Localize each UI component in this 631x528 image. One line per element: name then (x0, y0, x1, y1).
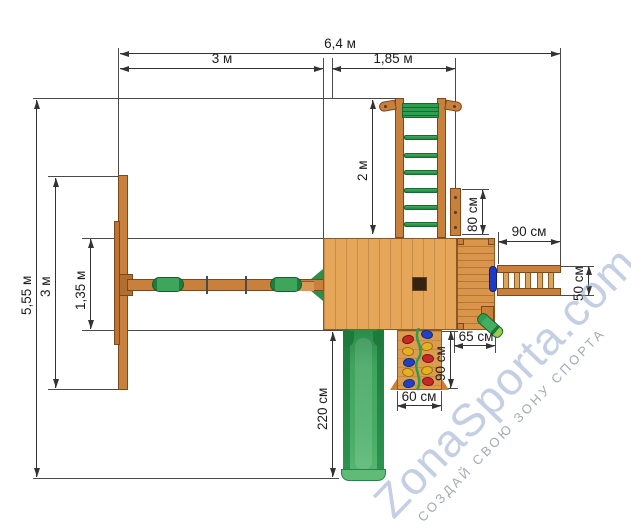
swing-seat-2 (270, 277, 302, 292)
dim-slide-length (332, 332, 333, 477)
dim-deck-depth-label: 1,35 м (73, 271, 88, 310)
monkey-bar-rung (404, 170, 438, 175)
beam-brace-lower (311, 291, 323, 301)
extension-line-right-end (560, 48, 561, 265)
dim-monkey-bars-label: 2 м (355, 160, 370, 181)
porch-post-top-left (457, 238, 464, 245)
dim-rock-wall-width (397, 405, 441, 406)
slide-exit-lip (341, 469, 386, 481)
porch-post-top-right (488, 238, 495, 245)
extension-line-span-split (332, 58, 333, 98)
extension-line-wall-right (441, 391, 442, 411)
slide-rail-right (377, 330, 384, 480)
dim-span-right-label: 1,85 м (373, 51, 412, 66)
dim-bridge-width-label: 50 см (571, 266, 586, 301)
dim-span-left-label: 3 м (212, 51, 233, 66)
slide-entry-wing-right (373, 331, 383, 347)
monkey-bar-rail-left (395, 98, 404, 238)
bridge-rung (514, 272, 520, 289)
dim-swing-frame-depth-label: 3 м (38, 276, 53, 297)
bridge-rung (537, 272, 543, 289)
dim-span-right (332, 68, 455, 69)
dim-bridge-length (498, 241, 560, 242)
playground-top-view-drawing: 6,4 м 3 м 1,85 м 2 м 80 см 90 см 50 см 6… (0, 0, 631, 528)
board-screw-2 (454, 211, 457, 214)
climb-rope (409, 328, 429, 392)
dim-rock-wall-length (450, 331, 451, 388)
extension-line-balcony-left (454, 331, 455, 353)
extension-line-post-bottom (48, 389, 121, 390)
monkey-bar-top-rungs (402, 103, 439, 118)
dim-overall-depth (36, 100, 37, 477)
swing-seat-1 (152, 277, 184, 292)
board-screw-3 (454, 226, 457, 229)
monkey-bar-rung (404, 222, 438, 227)
bracket-screw-right (453, 105, 456, 108)
dim-overall-width (120, 53, 560, 54)
dim-balcony-depth-label: 65 см (459, 329, 494, 344)
extension-line-left-end (118, 48, 119, 176)
dim-monkey-bars (372, 100, 373, 234)
deck-hatch-opening (412, 277, 427, 291)
climb-handle-blue (489, 266, 497, 292)
beam-brace-upper (311, 269, 323, 279)
dim-bridge-width (588, 266, 589, 295)
monkey-bar-bracket-left (378, 100, 396, 113)
extension-line-bottom (33, 478, 339, 479)
bridge-rung (548, 272, 554, 289)
dim-overall-depth-label: 5,55 м (19, 276, 34, 315)
bridge-rail-top (497, 265, 561, 273)
dim-bridge-length-label: 90 см (512, 224, 547, 239)
bridge-rail-bottom (497, 288, 561, 296)
board-screw-1 (454, 196, 457, 199)
extension-line-board-bottom (462, 234, 489, 235)
dim-overall-width-label: 6,4 м (324, 36, 356, 51)
swing-rope-mark-1 (206, 276, 208, 294)
extension-line-span-right (455, 58, 456, 189)
rock-wall-foot-left (390, 379, 397, 390)
monkey-bar-rung (404, 205, 438, 210)
dim-deck-depth (90, 239, 91, 329)
monkey-bar-rail-right (437, 98, 446, 238)
bridge-rung (503, 272, 509, 289)
bracket-screw-left (384, 105, 387, 108)
swing-rope-mark-2 (245, 276, 247, 294)
extension-line-deck-left (323, 58, 324, 238)
monkey-bar-rung (404, 135, 438, 140)
extension-line-bridge-left (498, 232, 499, 264)
slide-bed-highlight (355, 338, 372, 470)
dim-span-left (120, 68, 323, 69)
dim-access-board (482, 190, 483, 234)
slide-rail-left (343, 330, 350, 480)
dim-rock-wall-length-label: 90 см (433, 346, 448, 381)
dim-slide-length-label: 220 см (315, 388, 330, 430)
monkey-bar-rung (404, 188, 438, 193)
dim-swing-frame-depth (55, 178, 56, 388)
monkey-bar-rung (404, 153, 438, 158)
extension-line-post-top (48, 176, 121, 177)
dim-balcony-depth (454, 345, 495, 346)
bridge-rung (525, 272, 531, 289)
extension-line-top (33, 98, 398, 99)
dim-access-board-label: 80 см (465, 197, 480, 232)
main-deck (323, 238, 457, 330)
